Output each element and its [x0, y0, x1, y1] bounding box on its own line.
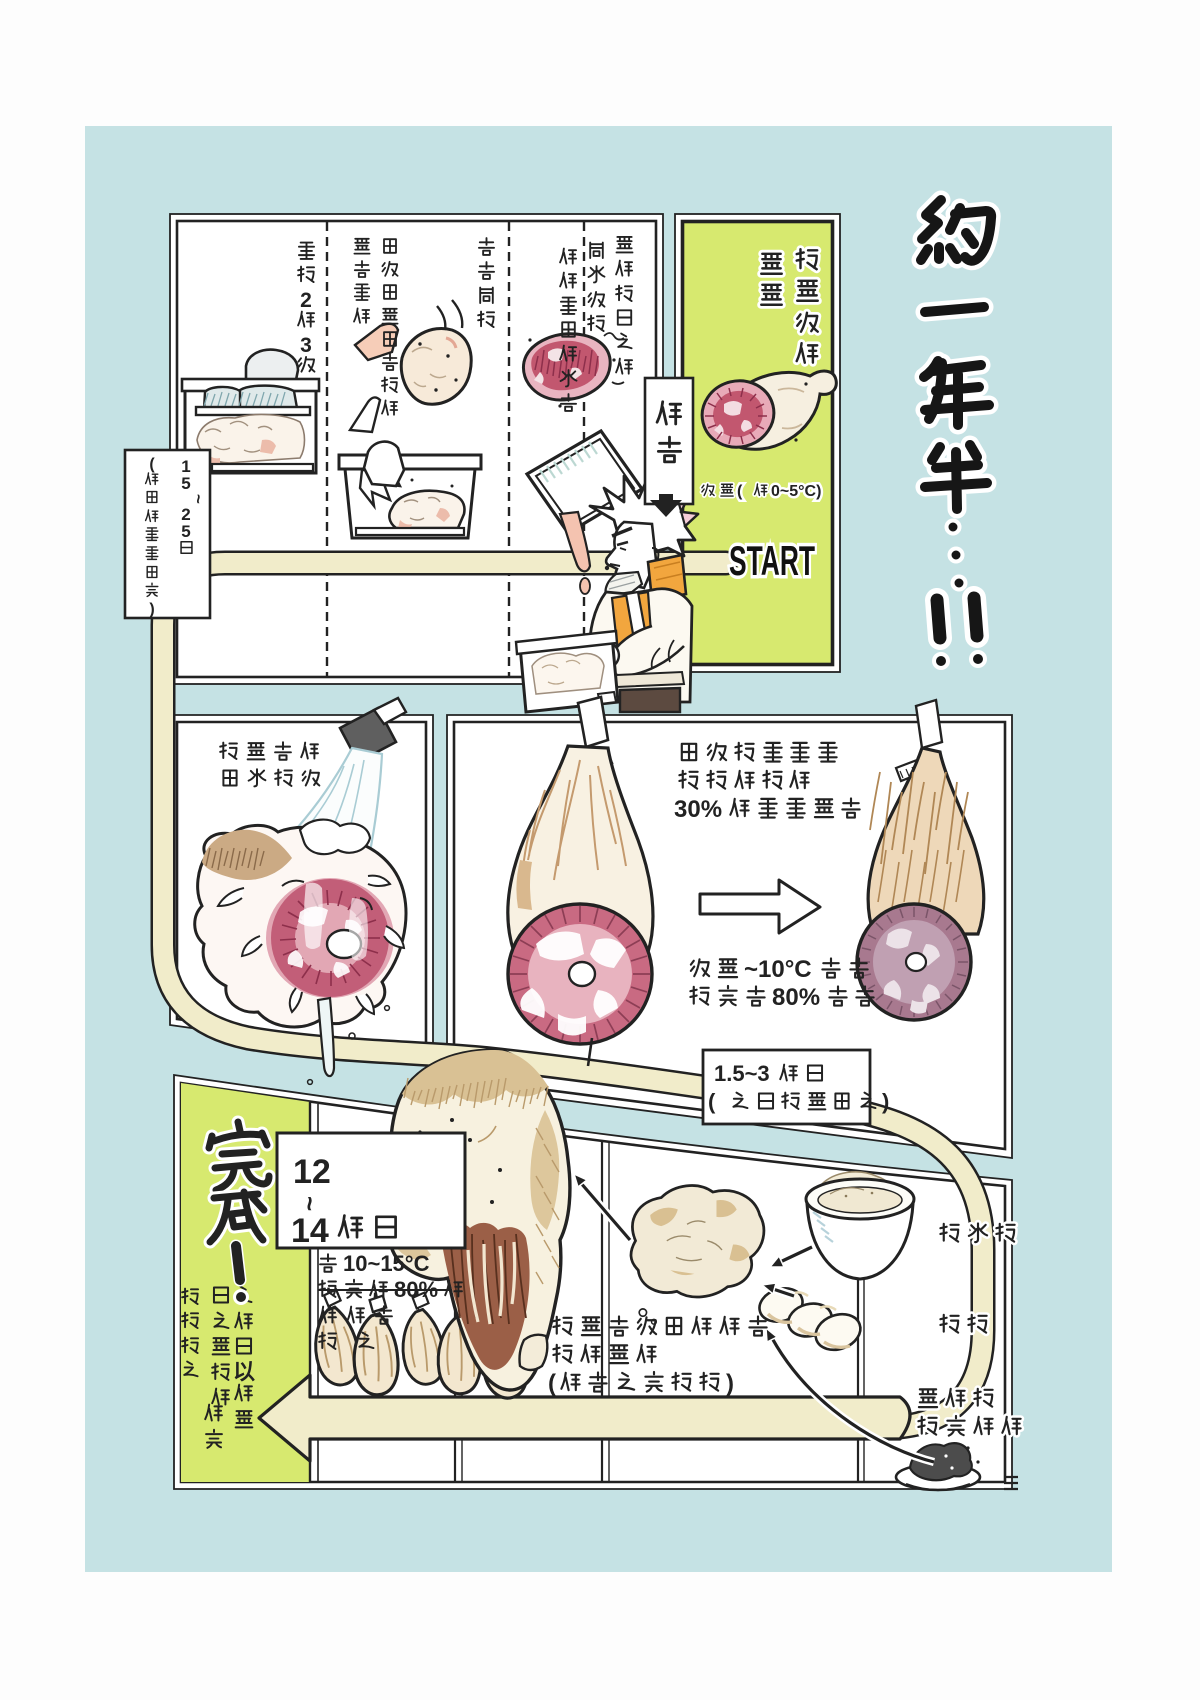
svg-text:): ): [149, 601, 154, 618]
svg-text:(: (: [149, 456, 155, 473]
svg-text:): ): [882, 1089, 889, 1114]
svg-text:~: ~: [295, 1196, 325, 1211]
svg-text:(: (: [548, 1370, 556, 1397]
svg-text:5: 5: [181, 522, 190, 541]
svg-text:10~15°C: 10~15°C: [343, 1251, 430, 1276]
svg-text:0~5°C): 0~5°C): [771, 483, 821, 500]
svg-text:80%: 80%: [772, 984, 820, 1011]
svg-text:~: ~: [189, 494, 208, 504]
svg-text:(: (: [708, 1089, 716, 1114]
svg-text:3: 3: [300, 334, 312, 357]
svg-text:): ): [726, 1370, 734, 1397]
svg-text:12: 12: [293, 1153, 331, 1191]
svg-text:30%: 30%: [674, 796, 722, 823]
svg-text:以: 以: [233, 1359, 255, 1384]
svg-text:14: 14: [291, 1212, 329, 1250]
svg-text:~10°C: ~10°C: [744, 956, 812, 983]
svg-text:5: 5: [181, 474, 190, 493]
svg-text:(: (: [737, 483, 743, 500]
svg-text:2: 2: [300, 289, 312, 312]
svg-text:1.5~3: 1.5~3: [714, 1061, 770, 1086]
svg-text:START: START: [729, 537, 815, 584]
svg-text:80%: 80%: [394, 1277, 438, 1302]
